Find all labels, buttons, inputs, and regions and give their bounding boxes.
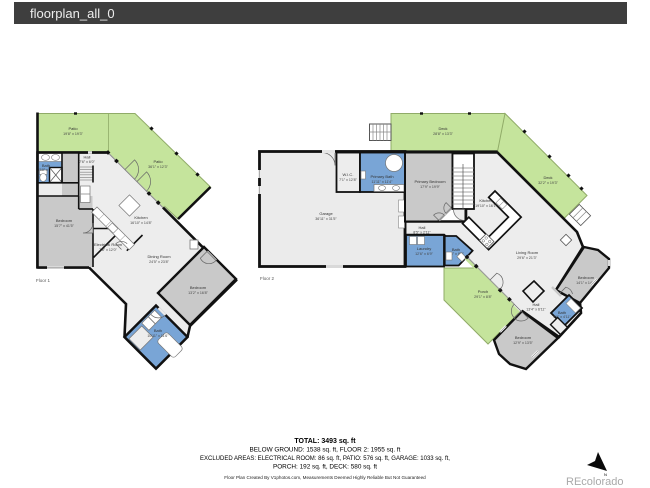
svg-text:Living Room: Living Room: [516, 250, 539, 255]
svg-text:Primary Bedroom: Primary Bedroom: [414, 179, 446, 184]
svg-text:floorplan_all_0: floorplan_all_0: [30, 6, 115, 21]
svg-text:Bedroom: Bedroom: [56, 218, 73, 223]
svg-text:Hall: Hall: [533, 302, 540, 307]
svg-text:REcolorado: REcolorado: [566, 476, 623, 488]
svg-text:32'2" x 19'3": 32'2" x 19'3": [538, 181, 558, 185]
svg-text:19'8" x 19'3": 19'8" x 19'3": [63, 132, 83, 136]
svg-text:W.I.C.: W.I.C.: [343, 172, 354, 177]
svg-text:13'2" x 16'8": 13'2" x 16'8": [188, 291, 208, 295]
svg-text:11'11" x 11'4": 11'11" x 11'4": [372, 180, 394, 184]
svg-text:7'6" x 6'0": 7'6" x 6'0": [79, 160, 95, 164]
svg-text:Kitchen: Kitchen: [134, 215, 147, 220]
svg-text:Primary Bath: Primary Bath: [370, 174, 393, 179]
svg-text:Bedroom: Bedroom: [578, 275, 595, 280]
svg-text:Patio: Patio: [68, 126, 78, 131]
svg-text:17'9" x 19'9": 17'9" x 19'9": [420, 185, 440, 189]
svg-text:Dining Room: Dining Room: [147, 254, 171, 259]
svg-text:Hall: Hall: [419, 225, 426, 230]
svg-text:Patio: Patio: [153, 159, 163, 164]
svg-text:16'10" x 14'8": 16'10" x 14'8": [130, 221, 152, 225]
svg-text:24'5" x 23'8": 24'5" x 23'8": [149, 260, 169, 264]
svg-text:10'11" x 11'6": 10'11" x 11'6": [147, 334, 169, 338]
svg-text:7'8" x 12'0": 7'8" x 12'0": [99, 248, 117, 252]
svg-text:BELOW GROUND: 1538 sq. ft, FLO: BELOW GROUND: 1538 sq. ft, FLOOR 2: 1955…: [250, 447, 401, 454]
svg-text:Porch: Porch: [478, 289, 488, 294]
svg-text:Bedroom: Bedroom: [515, 335, 532, 340]
svg-text:Bath: Bath: [154, 328, 162, 333]
svg-text:Floor 2: Floor 2: [260, 276, 275, 281]
svg-text:12'6" x 6'9": 12'6" x 6'9": [415, 252, 433, 256]
svg-text:Floor Plan Created By V1photos: Floor Plan Created By V1photos.com, Meas…: [224, 475, 426, 480]
svg-text:Laundry: Laundry: [417, 246, 431, 251]
svg-text:19'10" x 16'1": 19'10" x 16'1": [475, 204, 497, 208]
svg-text:Floor 1: Floor 1: [36, 278, 51, 283]
svg-text:Kitchen: Kitchen: [479, 198, 492, 203]
svg-text:Garage: Garage: [319, 211, 333, 216]
svg-text:12'9" x 13'5": 12'9" x 13'5": [513, 341, 533, 345]
svg-text:Deck: Deck: [438, 126, 447, 131]
svg-text:36'1" x 12'3": 36'1" x 12'3": [148, 165, 168, 169]
svg-text:PORCH: 192 sq. ft, DECK: 580 s: PORCH: 192 sq. ft, DECK: 580 sq. ft: [273, 464, 377, 471]
svg-text:Deck: Deck: [543, 175, 552, 180]
svg-text:36'11" x 31'5": 36'11" x 31'5": [315, 217, 337, 221]
svg-text:28'8" x 13'3": 28'8" x 13'3": [433, 132, 453, 136]
svg-text:8'5" x 2'11": 8'5" x 2'11": [413, 231, 431, 235]
svg-text:15'7" x 41'5": 15'7" x 41'5": [54, 224, 74, 228]
svg-text:Hall: Hall: [84, 155, 91, 160]
svg-text:7'1" x 12'8": 7'1" x 12'8": [339, 178, 357, 182]
svg-text:EXCLUDED AREAS: ELECTRICAL ROO: EXCLUDED AREAS: ELECTRICAL ROOM: 86 sq. …: [200, 456, 450, 462]
svg-text:29'6" x 21'3": 29'6" x 21'3": [517, 256, 537, 260]
svg-text:TOTAL: 3493 sq. ft: TOTAL: 3493 sq. ft: [294, 438, 356, 445]
svg-text:29'1" x 8'8": 29'1" x 8'8": [474, 295, 492, 299]
svg-text:Bedroom: Bedroom: [190, 285, 207, 290]
svg-text:13'4" x 6'11": 13'4" x 6'11": [526, 308, 546, 312]
